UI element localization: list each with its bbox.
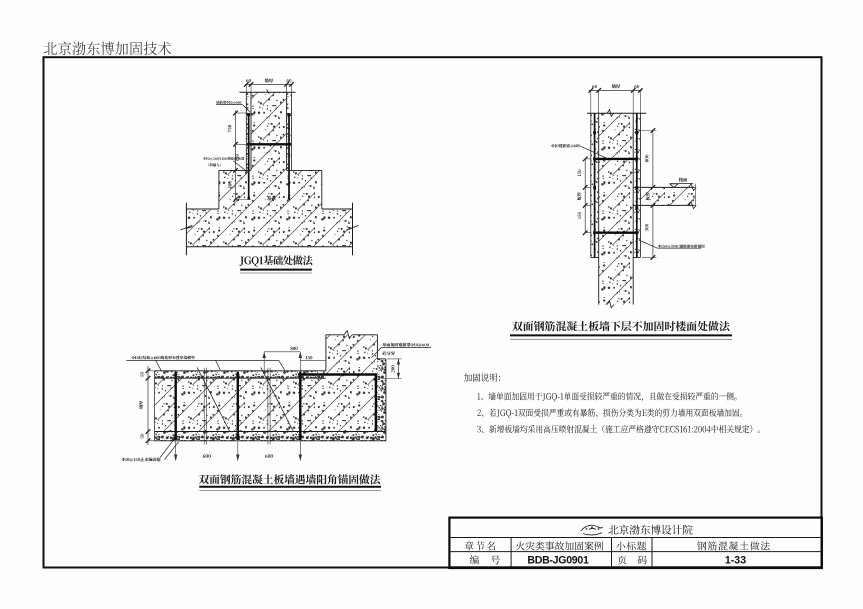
svg-text:1-33: 1-33 xyxy=(725,554,746,566)
svg-text:BDB-JG0901: BDB-JG0901 xyxy=(527,554,589,566)
